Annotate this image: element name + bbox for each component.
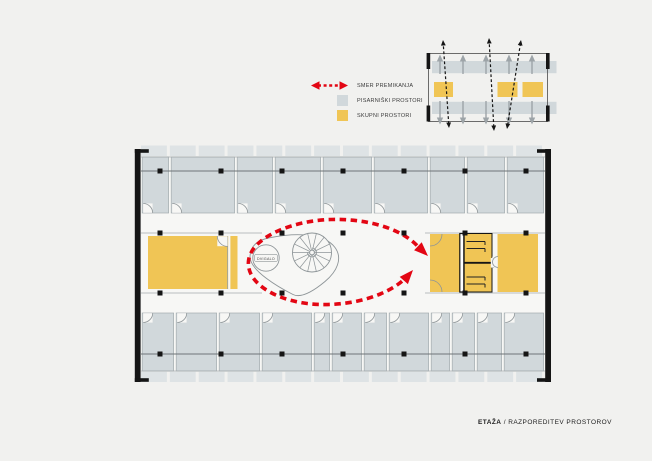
legend-item: SMER PREMIKANJA: [310, 78, 423, 93]
movement-arrow-icon: [311, 80, 348, 91]
column-marker: [402, 352, 407, 357]
column-marker: [158, 352, 163, 357]
column-marker: [158, 291, 163, 296]
balcony-segment: [343, 146, 369, 157]
legend-item: SKUPNI PROSTORI: [310, 108, 423, 123]
mini-corner-wall: [427, 106, 431, 122]
column-marker: [524, 352, 529, 357]
common-spaces-swatch: [337, 110, 349, 122]
floor-plan-canvas: DVIGALO: [0, 0, 652, 461]
column-marker: [463, 169, 468, 174]
balcony-segment: [228, 146, 254, 157]
column-marker: [158, 169, 163, 174]
legend-item: PISARNIŠKI PROSTORI: [310, 93, 423, 108]
stair-center: [310, 250, 315, 255]
balcony-segment: [314, 146, 340, 157]
mini-movement-arrowhead: [518, 40, 523, 46]
common-room-right: [498, 234, 539, 292]
column-marker: [341, 231, 346, 236]
balcony-segment: [372, 146, 398, 157]
caption: ETAŽA / RAZPOREDITEV PROSTOROV: [478, 419, 612, 426]
balcony-segment: [256, 146, 282, 157]
balcony-segment: [228, 372, 254, 382]
mini-exit-arrowhead: [437, 118, 443, 125]
column-marker: [219, 291, 224, 296]
mini-office-band: [432, 61, 557, 73]
column-marker: [341, 291, 346, 296]
balcony-segment: [256, 372, 282, 382]
balcony-segment: [199, 372, 225, 382]
column-marker: [280, 352, 285, 357]
movement-direction-icon: [310, 80, 348, 91]
balcony-segment: [285, 372, 311, 382]
mini-exit-arrowhead: [529, 118, 535, 125]
column-marker: [402, 231, 407, 236]
column-marker: [524, 291, 529, 296]
mini-movement-arrowhead: [505, 123, 510, 129]
caption-title: ETAŽA: [478, 419, 501, 426]
legend-label: SMER PREMIKANJA: [357, 83, 413, 89]
column-marker: [219, 231, 224, 236]
mini-common-room: [434, 82, 453, 97]
elevator-label: DVIGALO: [257, 257, 275, 261]
mini-common-room: [523, 82, 544, 97]
column-marker: [280, 169, 285, 174]
column-marker: [219, 169, 224, 174]
balcony-segment: [487, 372, 513, 382]
wall-left: [135, 149, 141, 382]
balcony-segment: [170, 146, 196, 157]
mini-movement-arrowhead: [487, 38, 492, 44]
column-marker: [463, 291, 468, 296]
balcony-segment: [372, 372, 398, 382]
office-spaces-swatch: [337, 95, 349, 107]
mini-corner-wall: [546, 53, 550, 69]
wall-stub: [135, 378, 149, 382]
partition-gap: [228, 236, 230, 289]
common-spaces-swatch-icon: [310, 110, 348, 122]
balcony-segment: [401, 146, 427, 157]
mini-movement-arrowhead: [491, 125, 496, 131]
column-marker: [463, 352, 468, 357]
wall-stub: [537, 378, 551, 382]
balcony-segment: [401, 372, 427, 382]
column-marker: [280, 231, 285, 236]
legend-label: SKUPNI PROSTORI: [357, 113, 411, 119]
mini-corner-wall: [427, 53, 431, 69]
wall-right: [545, 149, 551, 382]
column-marker: [402, 291, 407, 296]
mini-movement-arrowhead: [446, 122, 451, 128]
mini-corner-wall: [546, 106, 550, 122]
door-notch: [492, 257, 498, 268]
balcony-segment: [458, 372, 484, 382]
mini-movement-arrowhead: [441, 40, 446, 46]
office-spaces-swatch-icon: [310, 95, 348, 107]
balcony-segment: [314, 372, 340, 382]
mini-exit-arrowhead: [483, 118, 489, 125]
balcony-segment: [343, 372, 369, 382]
balcony-segment: [458, 146, 484, 157]
mini-exit-arrowhead: [506, 55, 512, 62]
mini-exit-arrowhead: [483, 55, 489, 62]
mini-movement-dashed-line: [489, 42, 494, 127]
column-marker: [158, 231, 163, 236]
mini-exit-arrowhead: [460, 55, 466, 62]
page: DVIGALO SMER PREMIKANJAPISARNIŠKI PROSTO…: [0, 0, 652, 461]
column-marker: [280, 291, 285, 296]
wall-stub: [537, 149, 551, 153]
legend: SMER PREMIKANJAPISARNIŠKI PROSTORISKUPNI…: [310, 78, 423, 123]
column-marker: [524, 231, 529, 236]
column-marker: [524, 169, 529, 174]
column-marker: [463, 231, 468, 236]
balcony-segment: [170, 372, 196, 382]
mini-exit-arrowhead: [437, 55, 443, 62]
balcony-segment: [430, 372, 456, 382]
column-marker: [341, 352, 346, 357]
balcony-segment: [199, 146, 225, 157]
column-marker: [219, 352, 224, 357]
balcony-segment: [487, 146, 513, 157]
column-marker: [341, 169, 346, 174]
mini-exit-arrowhead: [529, 55, 535, 62]
wc-wall: [460, 234, 464, 293]
caption-subtitle: / RAZPOREDITEV PROSTOROV: [501, 419, 611, 426]
mini-exit-arrowhead: [460, 118, 466, 125]
legend-label: PISARNIŠKI PROSTORI: [357, 98, 423, 104]
mini-office-band: [432, 102, 557, 114]
balcony-segment: [430, 146, 456, 157]
wall-stub: [135, 149, 149, 153]
column-marker: [402, 169, 407, 174]
balcony-segment: [285, 146, 311, 157]
